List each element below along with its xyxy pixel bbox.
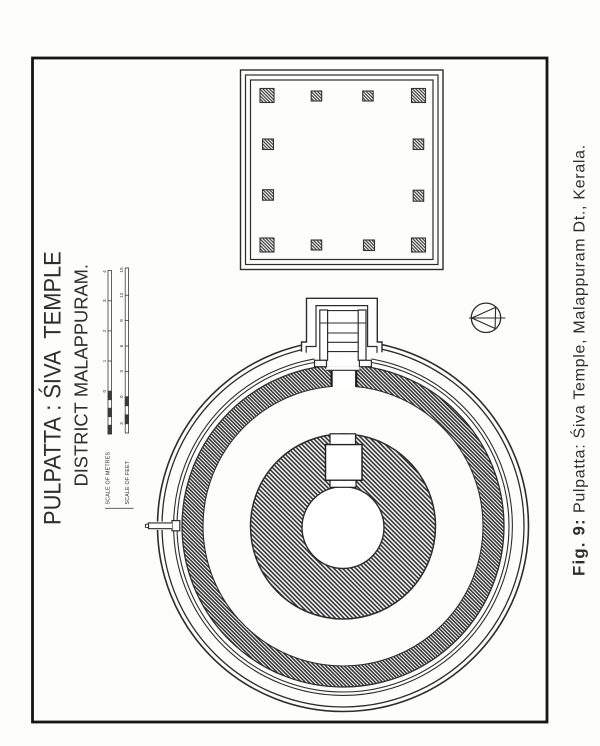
svg-text:2: 2	[102, 329, 108, 332]
svg-text:0: 0	[102, 390, 108, 393]
svg-text:0: 0	[119, 395, 125, 398]
svg-text:Fig. 9: Pulpatta: Śiva Temple,: Fig. 9: Pulpatta: Śiva Temple, Malappura…	[570, 144, 589, 576]
svg-text:DISTRICT MALAPPURAM.: DISTRICT MALAPPURAM.	[71, 264, 92, 486]
svg-text:4: 4	[102, 270, 108, 273]
svg-text:SCALE OF METRES: SCALE OF METRES	[105, 451, 111, 504]
svg-text:12: 12	[119, 292, 125, 298]
svg-text:3: 3	[102, 299, 108, 302]
svg-text:3: 3	[119, 370, 125, 373]
svg-text:6: 6	[119, 344, 125, 347]
svg-text:15: 15	[119, 267, 125, 273]
svg-text:3: 3	[119, 422, 125, 425]
svg-text:1: 1	[102, 359, 108, 362]
svg-text:PULPATTA : ŚIVA TEMPLE: PULPATTA : ŚIVA TEMPLE	[37, 251, 65, 525]
svg-text:SCALE OF FEET: SCALE OF FEET	[125, 460, 131, 504]
svg-text:9: 9	[119, 319, 125, 322]
